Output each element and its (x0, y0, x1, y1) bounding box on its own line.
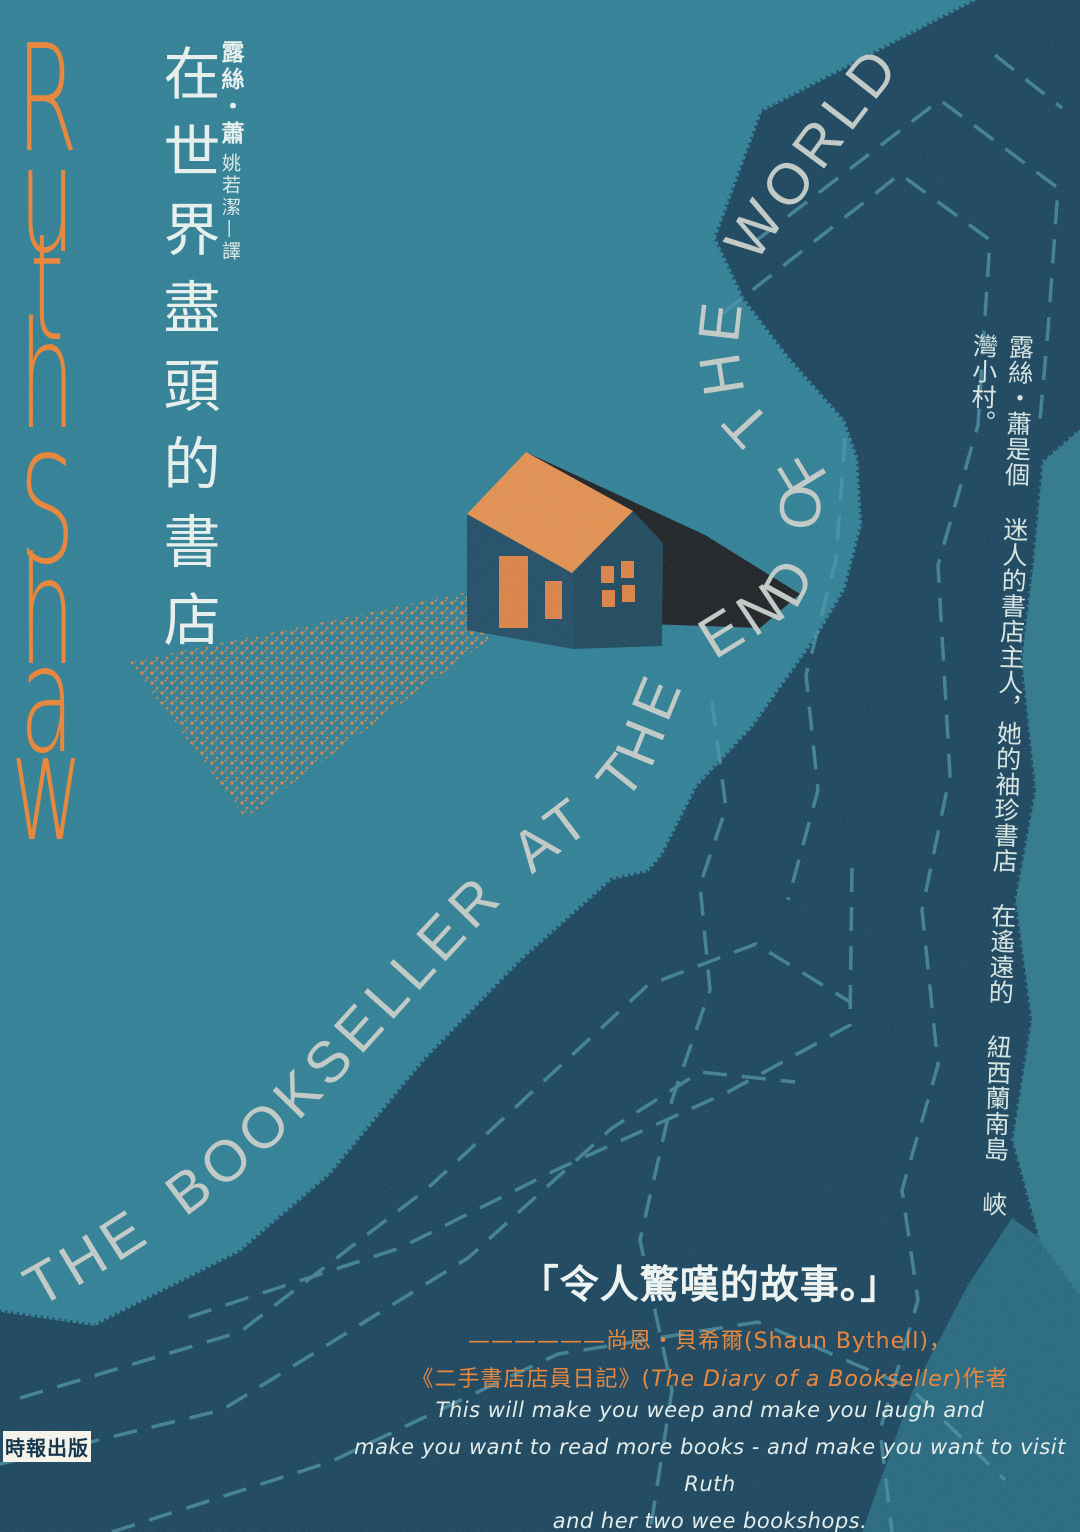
english-blurb-line-1: This will make you weep and make you lau… (330, 1392, 1080, 1429)
attr2-post: )作者 (953, 1367, 1009, 1392)
attr2-book-title: The Diary of a Bookseller (651, 1367, 953, 1392)
english-blurb: This will make you weep and make you lau… (330, 1392, 1080, 1532)
english-blurb-line-3: and her two wee bookshops. (330, 1503, 1080, 1532)
book-cover: THE BOOKSELLER AT THE END OF THE WORLD R… (0, 0, 1080, 1532)
publisher-name: 時報出版 (5, 1432, 89, 1461)
english-blurb-line-2: make you want to read more books - and m… (330, 1429, 1080, 1503)
english-author-vertical: Ruth Shaw (2, 42, 92, 832)
attr2-pre: 《二手書店店員日記》( (412, 1367, 652, 1392)
quote-attribution-line1: ——————尚恩・貝希爾(Shaun Bythell)， (330, 1323, 1080, 1355)
publisher-logo: 時報出版 (3, 1431, 91, 1462)
quote-attribution-line2: 《二手書店店員日記》(The Diary of a Bookseller)作者 (330, 1361, 1080, 1393)
translator-name: 姚若潔—譯 (219, 153, 241, 263)
quote-text: 「令人驚嘆的故事。」 (330, 1254, 1080, 1310)
author-block: 露絲・蕭 姚若潔—譯 (213, 40, 247, 460)
quote-block: 「令人驚嘆的故事。」 ——————尚恩・貝希爾(Shaun Bythell)， … (330, 1254, 1080, 1393)
chinese-author-name: 露絲・蕭 (217, 40, 243, 148)
